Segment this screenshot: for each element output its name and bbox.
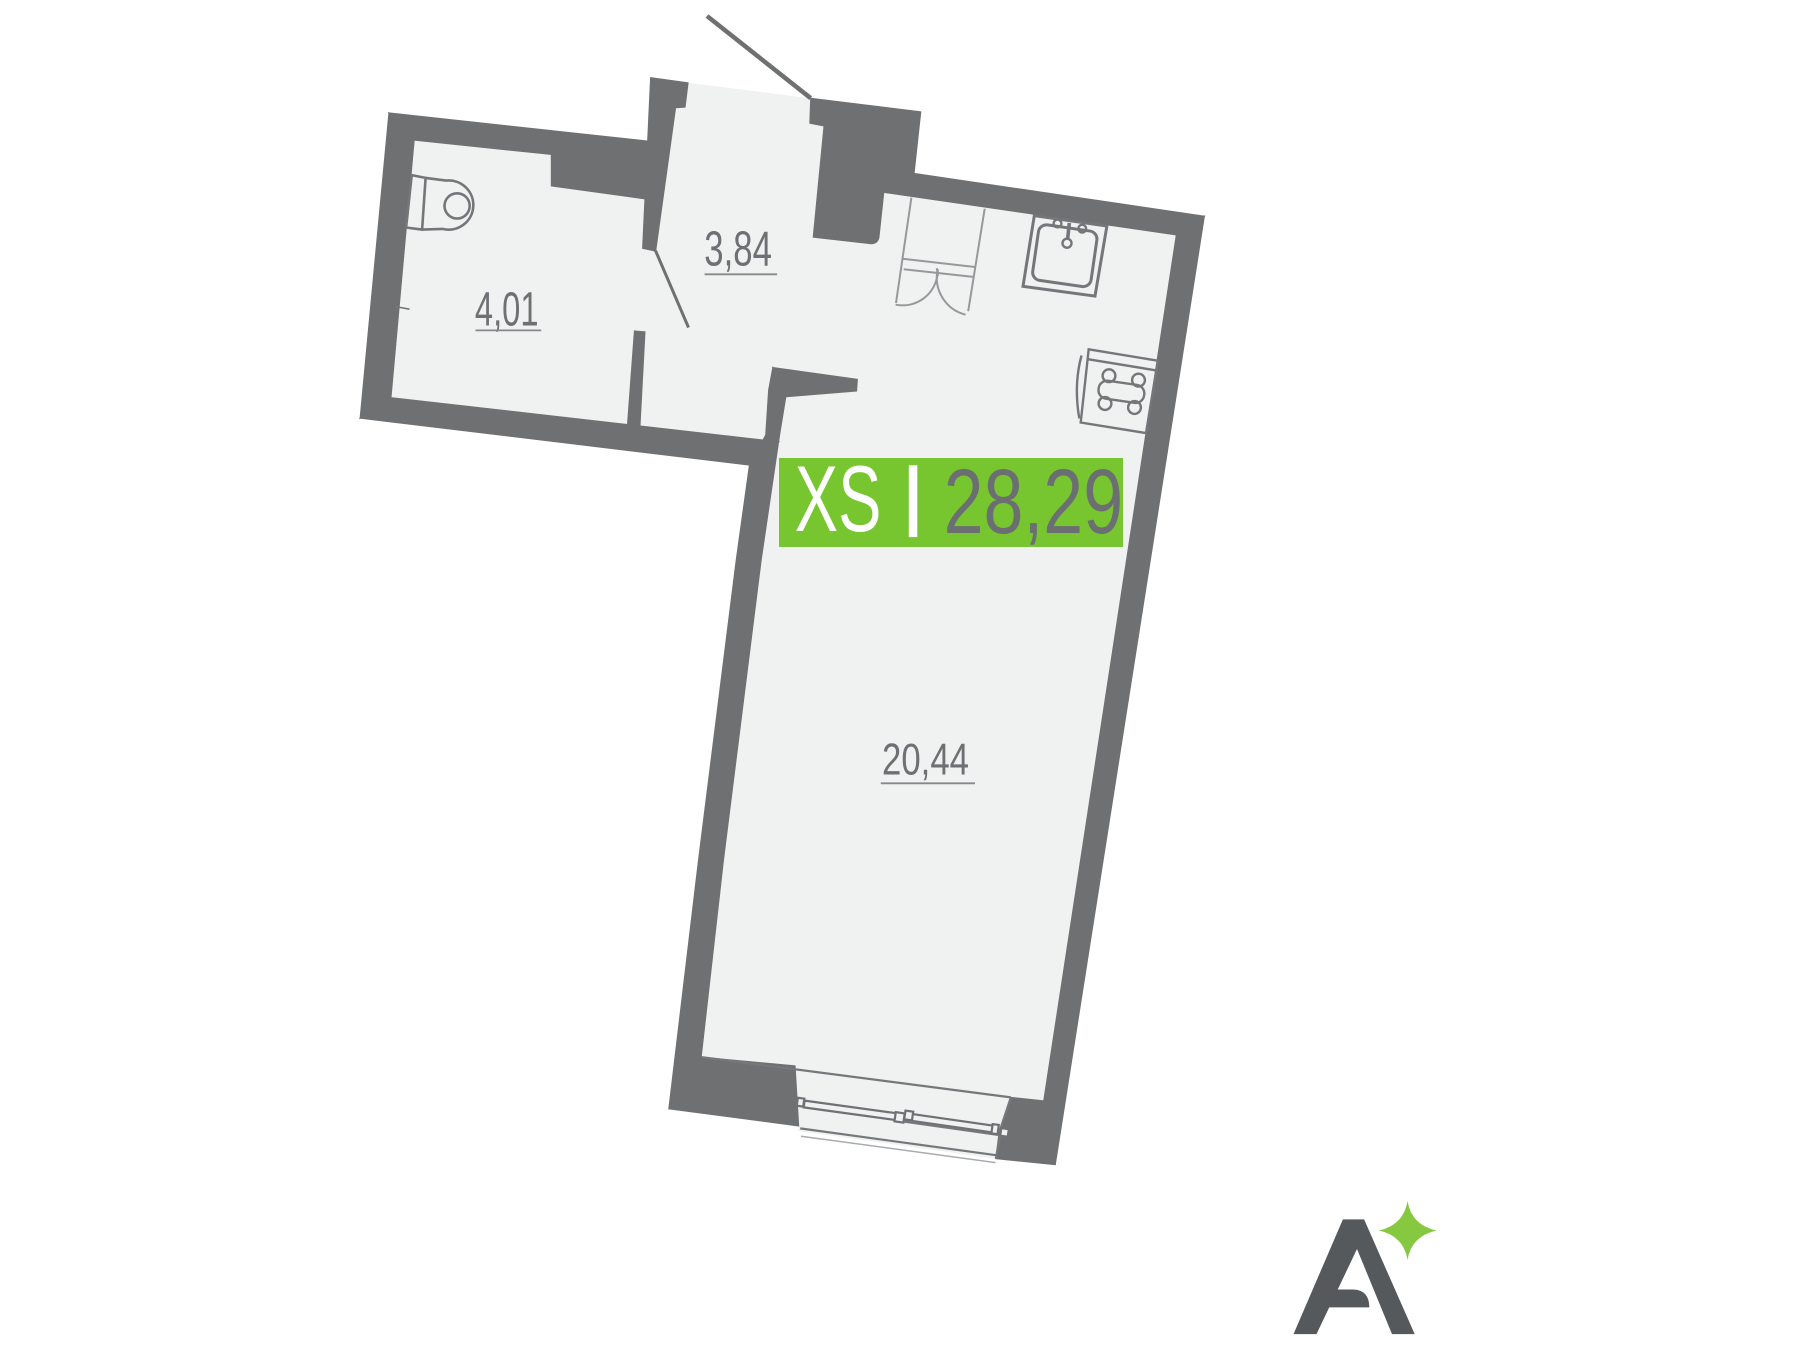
svg-text:XS: XS (795, 446, 882, 551)
svg-text:20,44: 20,44 (882, 736, 969, 785)
svg-text:28,29: 28,29 (944, 450, 1124, 553)
svg-text:4,01: 4,01 (475, 283, 539, 336)
svg-text:3,84: 3,84 (704, 223, 772, 277)
